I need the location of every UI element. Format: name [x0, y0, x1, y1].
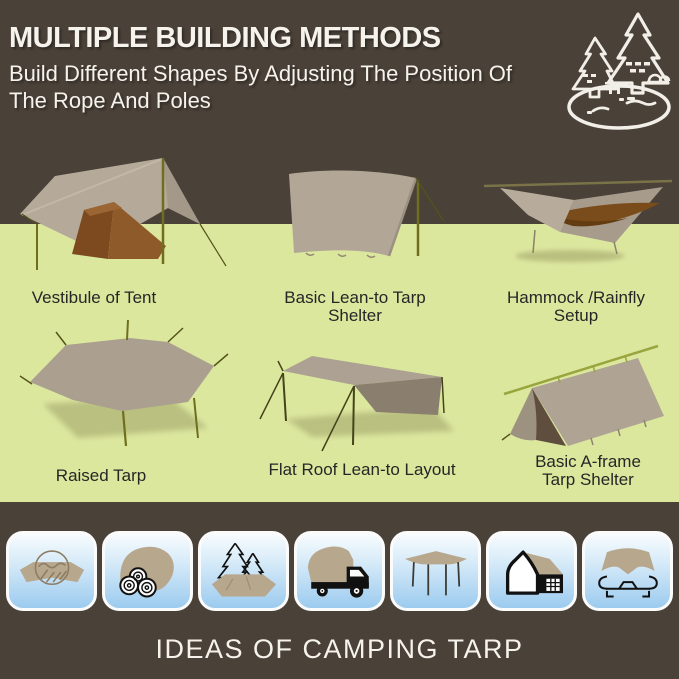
subtitle-line-1: Build Different Shapes By Adjusting The …	[9, 60, 512, 87]
label-line: Vestibule of Tent	[4, 289, 184, 307]
tent-shelter-tarp-icon	[493, 540, 571, 602]
label-line: Setup	[486, 307, 666, 325]
label-line: Shelter	[265, 307, 445, 325]
tile-canopy-tarp	[390, 531, 481, 611]
label-line: Hammock /Rainfly	[486, 289, 666, 307]
tile-ground-sheet-tarp	[198, 531, 289, 611]
firewood-cover-tarp-icon	[109, 540, 187, 602]
tile-rain-cover-tarp	[6, 531, 97, 611]
label-line: Basic A-frame	[498, 453, 678, 471]
page-title: MULTIPLE BUILDING METHODS	[9, 22, 441, 55]
method-label-raised-tarp: Raised Tarp	[11, 467, 191, 485]
illustration-vestibule-of-tent	[10, 146, 230, 276]
camping-tarp-infographic: MULTIPLE BUILDING METHODS Build Differen…	[0, 0, 679, 679]
tarp-idea-icon-row	[6, 531, 673, 611]
truck-cargo-cover-tarp-icon	[301, 540, 379, 602]
page-subtitle: Build Different Shapes By Adjusting The …	[9, 60, 512, 114]
footer-title: IDEAS OF CAMPING TARP	[0, 634, 679, 665]
label-line: Basic Lean-to Tarp	[265, 289, 445, 307]
label-line: Raised Tarp	[11, 467, 191, 485]
method-label-flat-roof-lean-to: Flat Roof Lean-to Layout	[247, 461, 477, 479]
tile-tent-shelter-tarp	[486, 531, 577, 611]
method-label-basic-lean-to: Basic Lean-to Tarp Shelter	[265, 289, 445, 325]
label-line: Tarp Shelter	[498, 471, 678, 489]
subtitle-line-2: The Rope And Poles	[9, 87, 512, 114]
pine-trees-camp-pond-icon	[562, 10, 676, 132]
tile-car-cover-tarp	[582, 531, 673, 611]
method-label-basic-a-frame: Basic A-frame Tarp Shelter	[498, 453, 678, 489]
method-label-vestibule-of-tent: Vestibule of Tent	[4, 289, 184, 307]
illustration-basic-lean-to	[268, 163, 453, 268]
canopy-tarp-icon	[397, 540, 475, 602]
ground-sheet-tarp-icon	[205, 540, 283, 602]
illustration-raised-tarp	[18, 316, 233, 451]
illustration-flat-roof-lean-to	[236, 333, 466, 458]
car-cover-tarp-icon	[589, 540, 667, 602]
tile-truck-cargo-cover-tarp	[294, 531, 385, 611]
illustration-basic-a-frame	[496, 336, 676, 456]
tile-firewood-cover-tarp	[102, 531, 193, 611]
rain-cover-tarp-icon	[13, 540, 91, 602]
label-line: Flat Roof Lean-to Layout	[247, 461, 477, 479]
illustration-hammock-rainfly	[478, 168, 678, 268]
method-label-hammock-rainfly: Hammock /Rainfly Setup	[486, 289, 666, 325]
